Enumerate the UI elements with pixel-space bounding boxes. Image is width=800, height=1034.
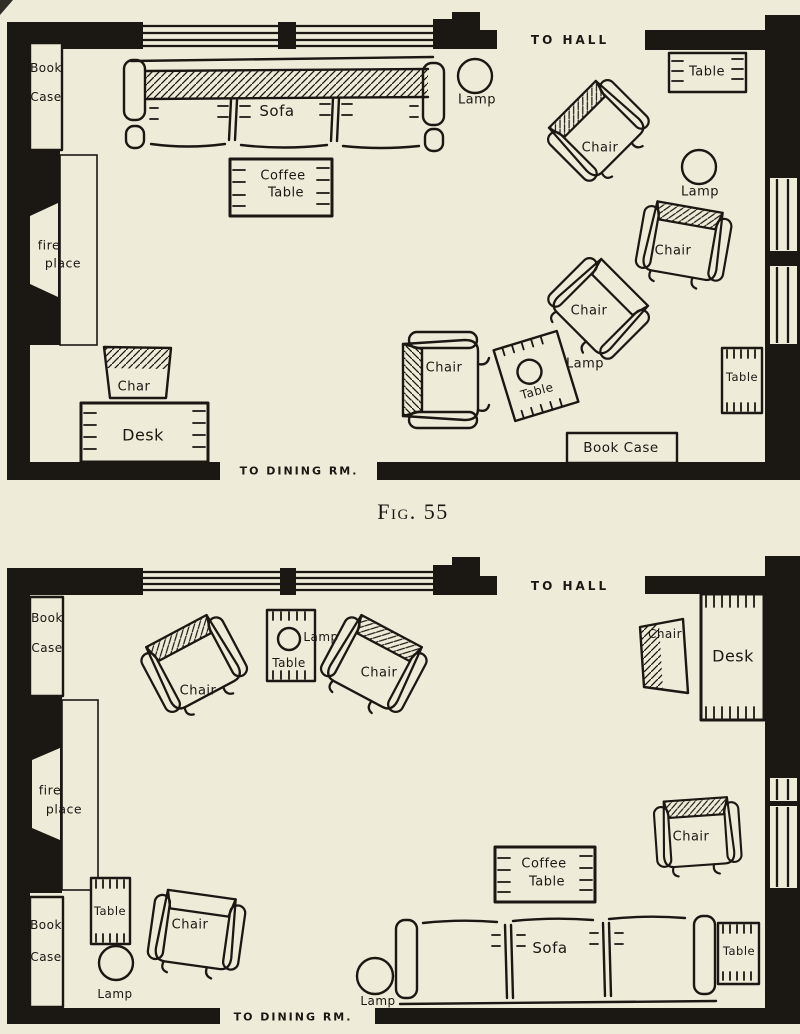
plan2-fireplace-label-2: place bbox=[46, 802, 82, 817]
plan1-lamp-right-icon bbox=[682, 150, 716, 184]
plan2-bookcase-bottom-label-1: Book bbox=[30, 918, 62, 932]
plan1-table-right-wall-label: Table bbox=[726, 370, 758, 384]
plan1-lamp-by-sofa-label: Lamp bbox=[458, 93, 496, 108]
plan2-chair-window-left bbox=[136, 610, 255, 725]
plan2-bookcase-top-label-2: Case bbox=[31, 641, 62, 655]
plan2-lamp-center-label: Lamp bbox=[360, 994, 395, 1008]
plan2-chair-fireplace-label: Chair bbox=[172, 918, 209, 933]
plan2-fireplace-label-1: fire bbox=[39, 783, 61, 798]
plan2-hearth bbox=[62, 700, 98, 890]
plan1-lamp-side-table-label: Lamp bbox=[566, 357, 604, 372]
plan1-chair-middle-label: Chair bbox=[571, 304, 608, 319]
plan1-chair-top bbox=[541, 73, 659, 191]
plan2-chair-fireplace bbox=[145, 888, 247, 982]
plan2-desk-chair-label: Chair bbox=[648, 627, 682, 641]
plan2-window-right-wall bbox=[770, 778, 797, 888]
plan1-chair-left-label: Chair bbox=[426, 361, 463, 376]
plan2-bookcase-bottom-label-2: Case bbox=[30, 950, 61, 964]
plan2-sofa-label: Sofa bbox=[532, 939, 567, 957]
plan1-door-hall-label: TO HALL bbox=[531, 33, 609, 47]
plan1-fireplace-label-1: fire bbox=[38, 238, 60, 253]
plan1-bookcase-bottom-label: Book Case bbox=[583, 440, 658, 456]
plan1-chair-top-label: Chair bbox=[582, 141, 619, 156]
figure-caption: Fig. 55 bbox=[377, 499, 449, 525]
plan2-coffee-table-label-2: Table bbox=[529, 875, 565, 890]
plan2-chair-right-wall-label: Chair bbox=[673, 830, 710, 845]
plan1-sofa-label: Sofa bbox=[259, 102, 294, 120]
plan2-lamp-left-label: Lamp bbox=[97, 987, 132, 1001]
plan1-lamp-right-label: Lamp bbox=[681, 185, 719, 200]
scanned-book-page: TO HALL Table Lamp Sofa Chair Lamp Coffe… bbox=[0, 0, 800, 1034]
plan2-side-table-left-label: Table bbox=[94, 904, 126, 918]
plan2-door-dining-label: TO DINING RM. bbox=[234, 1011, 353, 1024]
plan1-fireplace-label-2: place bbox=[45, 256, 81, 271]
plan2-lamp-table-label: Table bbox=[272, 656, 306, 670]
plan1-hearth bbox=[60, 155, 97, 345]
plan2-chair-window-left-label: Chair bbox=[180, 684, 217, 699]
plan2-chair-window-right-label: Chair bbox=[361, 666, 398, 681]
plan1-bookcase-wall-label-2: Case bbox=[30, 90, 61, 104]
plan2-lamp-center-icon bbox=[357, 958, 393, 994]
plan1-coffee-table-label-2: Table bbox=[268, 186, 304, 201]
scan-artifact bbox=[0, 0, 13, 15]
plan1-desk-label: Desk bbox=[122, 426, 164, 445]
plan2-lamp-left-icon bbox=[99, 946, 133, 980]
plan1-desk-chair-label: Char bbox=[118, 380, 151, 395]
plan1-door-dining-label: TO DINING RM. bbox=[240, 465, 359, 478]
plan1-lamp-by-sofa-icon bbox=[458, 59, 492, 93]
plan1-bookcase-wall-label-1: Book bbox=[30, 61, 62, 75]
plan2-lamp-table-lamp-label: Lamp bbox=[303, 630, 338, 644]
plan1-side-table bbox=[494, 331, 579, 421]
plan1-corner-table-label: Table bbox=[689, 65, 725, 80]
plan2-lamp-table bbox=[267, 610, 315, 681]
plan2-desk-label: Desk bbox=[712, 647, 754, 666]
plan1-coffee-table-label-1: Coffee bbox=[260, 169, 305, 184]
plan2-table-by-sofa-label: Table bbox=[723, 944, 755, 958]
plan2-door-hall-label: TO HALL bbox=[531, 579, 609, 593]
plan1-chair-left bbox=[403, 332, 489, 428]
plan2-sofa bbox=[396, 916, 716, 1004]
plan2-coffee-table-label-1: Coffee bbox=[521, 857, 566, 872]
plan1-chair-right-label: Chair bbox=[655, 244, 692, 259]
plan2-bookcase-top-label-1: Book bbox=[31, 611, 63, 625]
